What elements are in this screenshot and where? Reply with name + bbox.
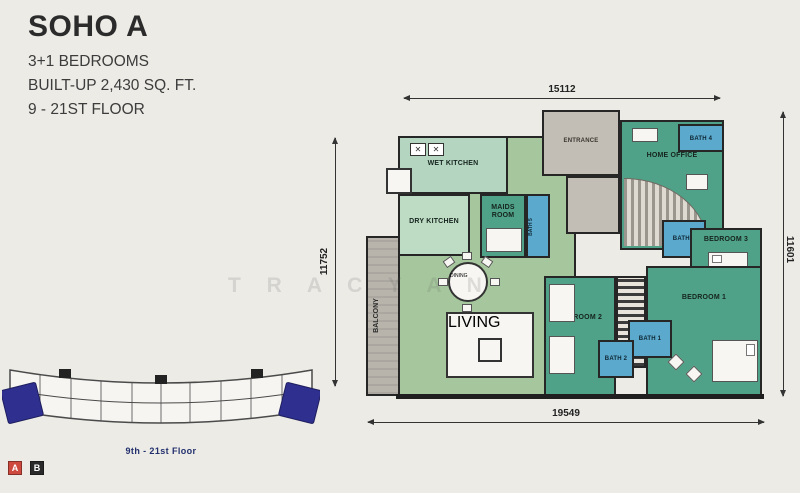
highlighted-unit-left xyxy=(2,382,44,424)
dimension-top-value: 15112 xyxy=(404,84,720,95)
dimension-left-value: 11752 xyxy=(319,248,330,275)
bath-4-label: BATH 4 xyxy=(680,136,722,143)
entrance-hall xyxy=(566,176,620,234)
bath-1-label: BATH 1 xyxy=(630,336,670,343)
home-office-label: HOME OFFICE xyxy=(622,152,722,160)
bath-2-label: BATH 2 xyxy=(600,356,632,363)
unit-name: SOHO A xyxy=(28,10,196,44)
dimension-bottom: 19549 xyxy=(368,408,764,423)
living-label: LIVING xyxy=(448,314,500,331)
bath-5-label: BATH 5 xyxy=(528,218,534,236)
bath-2: BATH 2 xyxy=(598,340,634,378)
maids-room: MAIDS ROOM xyxy=(480,194,526,258)
key-plan-caption: 9th - 21st Floor xyxy=(2,446,320,456)
wall xyxy=(396,394,764,399)
bed-icon xyxy=(549,336,575,374)
balcony: BALCONY xyxy=(366,236,400,396)
bed-icon xyxy=(549,284,575,322)
pillow-icon xyxy=(712,255,722,263)
wet-kitchen-label: WET KITCHEN xyxy=(400,160,506,168)
dimension-right-value: 11601 xyxy=(784,236,795,263)
bedroom-1-label: BEDROOM 1 xyxy=(648,294,760,302)
dimension-line xyxy=(368,422,764,423)
unit-type-legend: A B xyxy=(8,461,44,475)
balcony-label: BALCONY xyxy=(373,298,380,333)
built-up-line: BUILT-UP 2,430 SQ. FT. xyxy=(28,74,196,98)
ac-ledge xyxy=(386,168,412,194)
dimension-line xyxy=(404,98,720,99)
ottoman-icon xyxy=(686,366,703,383)
stove-icon: ✕ xyxy=(410,143,426,156)
bath-1: BATH 1 xyxy=(628,320,672,358)
bath-5: BATH 5 xyxy=(526,194,550,258)
desk-icon xyxy=(632,128,658,142)
building-arc xyxy=(2,356,320,446)
bedroom-2: BEDROOM 2 xyxy=(544,276,616,396)
pillow-icon xyxy=(746,344,755,356)
dry-kitchen: DRY KITCHEN xyxy=(398,194,470,256)
chair-icon xyxy=(462,304,472,312)
legend-type-b: B xyxy=(30,461,44,475)
dimension-top: 15112 xyxy=(404,84,720,99)
chair-icon xyxy=(438,278,448,286)
floor-plan: BALCONY WET KITCHEN ✕ ✕ DRY KITCHEN MAID… xyxy=(360,100,772,402)
dimension-right: 11601 xyxy=(776,112,792,396)
floors-line: 9 - 21ST FLOOR xyxy=(28,98,196,122)
dining-label: DINING xyxy=(450,273,468,279)
dining-table: DINING xyxy=(448,262,488,302)
dry-kitchen-label: DRY KITCHEN xyxy=(400,218,468,226)
stove-icon: ✕ xyxy=(428,143,444,156)
bedroom-3-label: BEDROOM 3 xyxy=(692,236,760,244)
chair-icon xyxy=(462,252,472,260)
entrance-label: ENTRANCE xyxy=(544,138,618,145)
bedrooms-line: 3+1 BEDROOMS xyxy=(28,50,196,74)
chair-icon xyxy=(490,278,500,286)
maids-room-label: MAIDS ROOM xyxy=(482,204,524,220)
coffee-table-icon xyxy=(478,338,502,362)
core-block xyxy=(251,369,263,378)
bath-4: BATH 4 xyxy=(678,124,724,152)
entrance: ENTRANCE xyxy=(542,110,620,176)
highlighted-unit-right xyxy=(278,382,320,424)
core-block xyxy=(155,375,167,384)
dimension-bottom-value: 19549 xyxy=(368,408,764,419)
floor-plan-page: SOHO A 3+1 BEDROOMS BUILT-UP 2,430 SQ. F… xyxy=(0,0,800,493)
dimension-line xyxy=(335,138,336,386)
title-block: SOHO A 3+1 BEDROOMS BUILT-UP 2,430 SQ. F… xyxy=(28,10,196,122)
legend-type-a: A xyxy=(8,461,22,475)
key-plan: 9th - 21st Floor xyxy=(2,356,320,468)
dimension-left: 11752 xyxy=(328,138,344,386)
wet-kitchen: WET KITCHEN ✕ ✕ xyxy=(398,136,508,194)
core-block xyxy=(59,369,71,378)
sofa: LIVING xyxy=(446,312,534,378)
desk-icon xyxy=(686,174,708,190)
bed-icon xyxy=(486,228,522,252)
